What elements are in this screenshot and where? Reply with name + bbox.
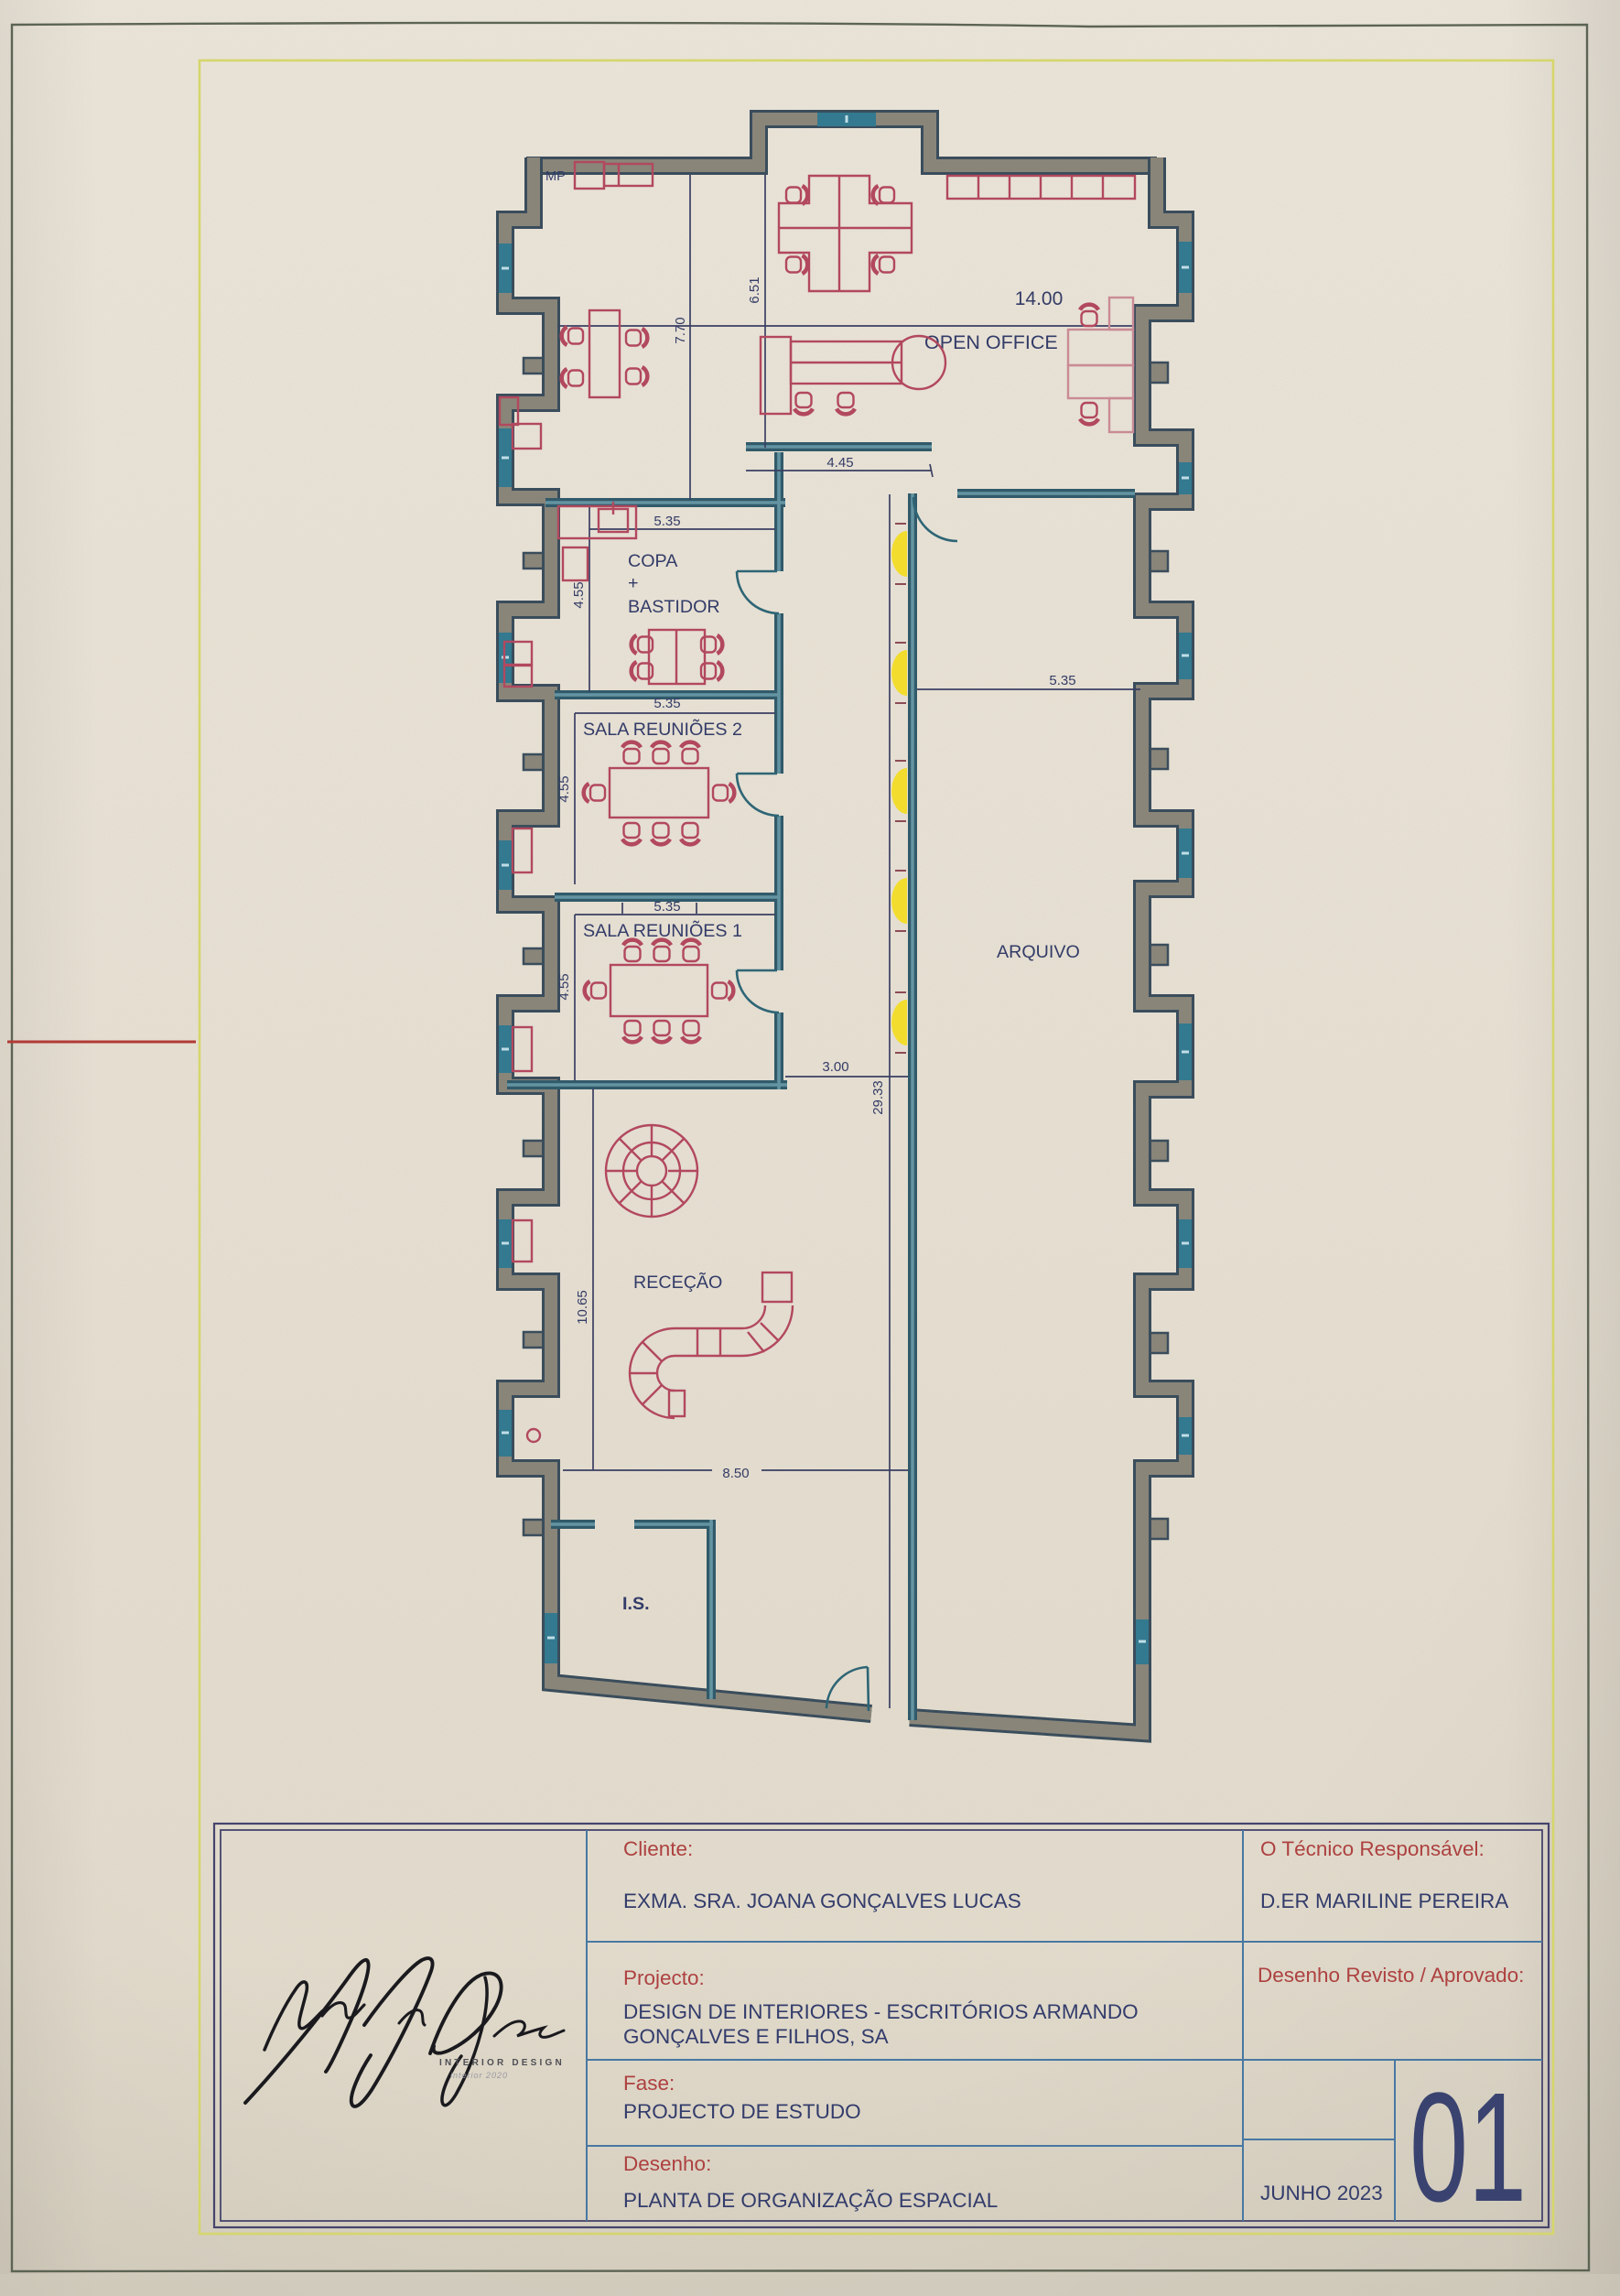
svg-text:Cliente:: Cliente: xyxy=(623,1837,693,1860)
svg-text:Projecto:: Projecto: xyxy=(623,1966,705,1989)
svg-text:01: 01 xyxy=(1409,2061,1527,2235)
svg-text:4.45: 4.45 xyxy=(826,455,853,471)
svg-text:5.35: 5.35 xyxy=(653,514,680,529)
svg-text:PLANTA DE ORGANIZAÇÃO ESPACIAL: PLANTA DE ORGANIZAÇÃO ESPACIAL xyxy=(623,2189,998,2212)
svg-text:PROJECTO DE ESTUDO: PROJECTO DE ESTUDO xyxy=(623,2100,861,2123)
svg-text:29.33: 29.33 xyxy=(870,1080,886,1115)
svg-text:interior 2020: interior 2020 xyxy=(450,2071,508,2080)
svg-text:7.70: 7.70 xyxy=(673,317,688,343)
svg-text:+: + xyxy=(628,573,639,593)
svg-text:INTERIOR DESIGN: INTERIOR DESIGN xyxy=(439,2058,565,2068)
svg-text:6.51: 6.51 xyxy=(747,276,762,303)
svg-text:5.35: 5.35 xyxy=(1049,673,1075,688)
svg-text:4.55: 4.55 xyxy=(556,973,572,1000)
svg-text:Desenho Revisto / Aprovado:: Desenho Revisto / Aprovado: xyxy=(1258,1964,1524,1987)
svg-text:GONÇALVES E FILHOS, SA: GONÇALVES E FILHOS, SA xyxy=(623,2025,889,2048)
svg-text:O Técnico Responsável:: O Técnico Responsável: xyxy=(1260,1837,1485,1860)
svg-text:3.00: 3.00 xyxy=(822,1059,848,1075)
svg-text:DESIGN DE INTERIORES - ESCRITÓ: DESIGN DE INTERIORES - ESCRITÓRIOS ARMAN… xyxy=(623,2000,1139,2023)
svg-text:14.00: 14.00 xyxy=(1015,288,1064,309)
svg-text:5.35: 5.35 xyxy=(653,696,680,711)
svg-text:4.55: 4.55 xyxy=(556,775,572,802)
svg-text:OPEN OFFICE: OPEN OFFICE xyxy=(924,331,1058,353)
svg-text:ARQUIVO: ARQUIVO xyxy=(997,942,1080,962)
svg-text:5.35: 5.35 xyxy=(653,899,680,915)
svg-text:Desenho:: Desenho: xyxy=(623,2152,711,2175)
svg-text:MP: MP xyxy=(545,169,566,184)
svg-text:SALA REUNIÕES 2: SALA REUNIÕES 2 xyxy=(583,719,742,740)
svg-text:8.50: 8.50 xyxy=(722,1466,749,1481)
svg-text:10.65: 10.65 xyxy=(575,1290,590,1325)
svg-text:I.S.: I.S. xyxy=(622,1594,650,1614)
svg-text:Fase:: Fase: xyxy=(623,2072,675,2095)
svg-text:D.ER MARILINE PEREIRA: D.ER MARILINE PEREIRA xyxy=(1260,1890,1508,1912)
svg-text:COPA: COPA xyxy=(628,551,678,571)
svg-text:RECEÇÃO: RECEÇÃO xyxy=(633,1272,722,1293)
svg-text:JUNHO 2023: JUNHO 2023 xyxy=(1260,2182,1383,2204)
svg-text:4.55: 4.55 xyxy=(571,581,587,608)
svg-text:BASTIDOR: BASTIDOR xyxy=(628,597,720,617)
svg-text:EXMA. SRA. JOANA GONÇALVES LUC: EXMA. SRA. JOANA GONÇALVES LUCAS xyxy=(623,1890,1021,1912)
